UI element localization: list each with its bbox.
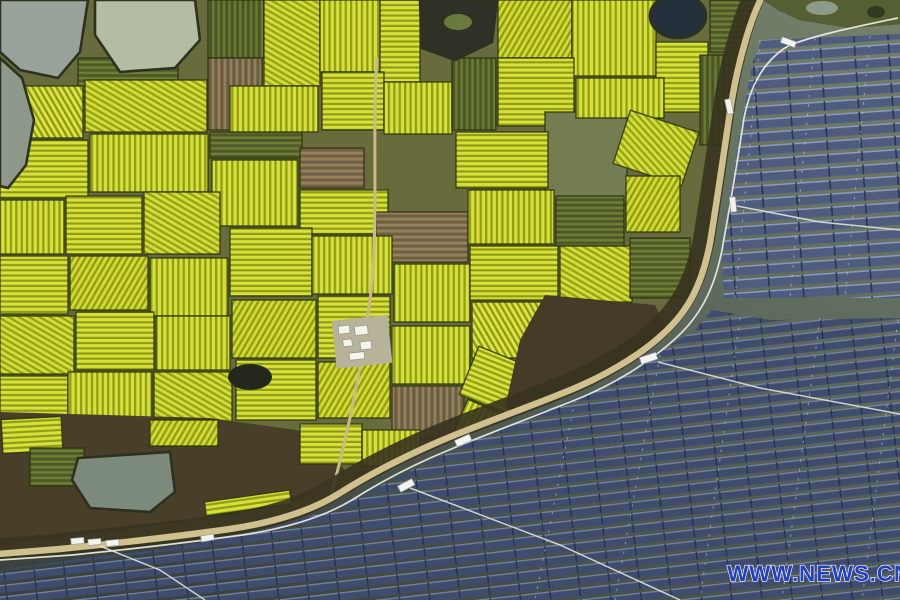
pond [650, 0, 706, 38]
pond [72, 452, 175, 512]
aerial-photo: WWW.NEWS.CN [0, 0, 900, 600]
news-watermark: WWW.NEWS.CN [727, 561, 900, 586]
pond-plants [444, 14, 472, 30]
farm-buildings [332, 315, 393, 369]
